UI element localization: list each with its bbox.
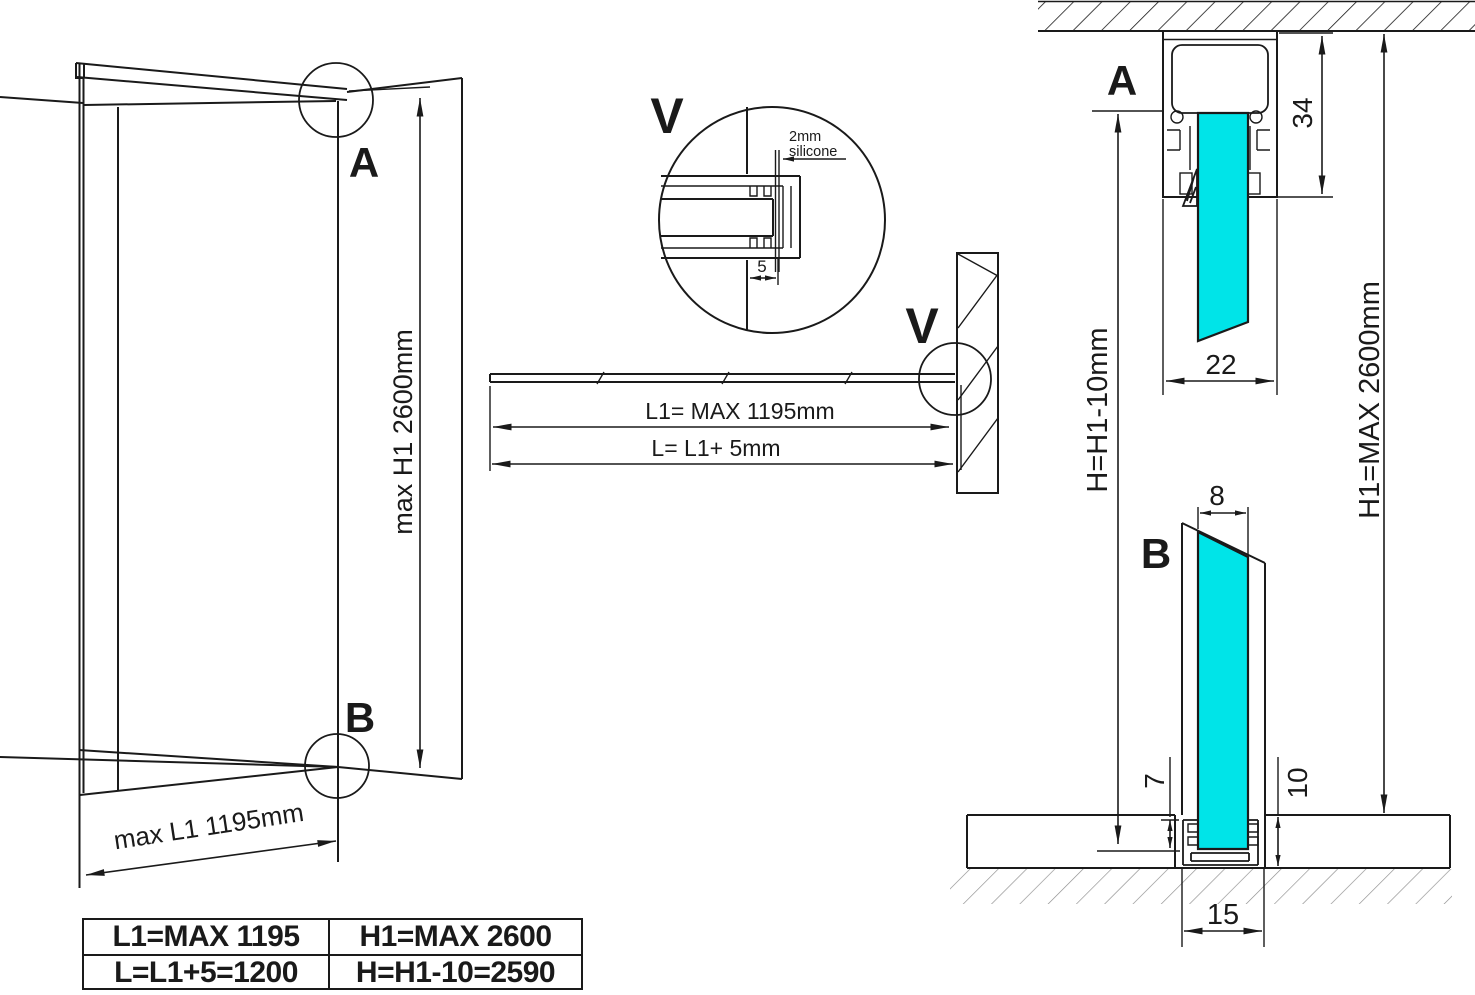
installed-height-dim-text: H=H1-10mm bbox=[1082, 327, 1114, 492]
glass-length-dim-text: L1= MAX 1195mm bbox=[645, 398, 834, 424]
profile-height-dim-text: 34 bbox=[1287, 97, 1318, 128]
silicone-note-line2: silicone bbox=[789, 144, 837, 160]
spec-l1-max: L1=MAX 1195 bbox=[84, 920, 330, 956]
height-dim-text: max H1 2600mm bbox=[388, 329, 418, 535]
max-height-dim-text: H1=MAX 2600mm bbox=[1354, 281, 1386, 519]
section-b-label: B bbox=[1141, 530, 1171, 577]
glass-thickness-dim-text: 8 bbox=[1209, 480, 1225, 511]
detail-v-title: V bbox=[650, 88, 684, 144]
glass-section-a bbox=[1198, 113, 1248, 341]
technical-drawing-page: A B max H1 2600mm max L1 1195mm V 2mm si… bbox=[0, 0, 1475, 995]
spec-h-formula: H=H1-10=2590 bbox=[330, 956, 581, 990]
glass-wedge-gasket bbox=[1183, 169, 1197, 206]
glass-seat-dim-text: 7 bbox=[1139, 773, 1170, 789]
detail-a-label: A bbox=[349, 139, 379, 186]
wall-top-line bbox=[0, 97, 83, 103]
silicone-note-line1: 2mm bbox=[789, 129, 821, 145]
gap-dim-text: 5 bbox=[757, 257, 766, 276]
glass-plan-bar bbox=[490, 374, 955, 382]
glass-section-b bbox=[1198, 532, 1248, 849]
ceiling-hatch bbox=[1038, 1, 1475, 31]
spec-table: L1=MAX 1195 H1=MAX 2600 L=L1+5=1200 H=H1… bbox=[82, 918, 583, 990]
silicone-strip bbox=[776, 150, 780, 272]
detail-v-view: V 2mm silicone 5 bbox=[650, 88, 885, 333]
detail-b-label: B bbox=[345, 694, 375, 741]
profile-width-dim-text: 22 bbox=[1205, 349, 1236, 380]
perspective-view: A B max H1 2600mm max L1 1195mm bbox=[0, 63, 462, 888]
top-profile-bar bbox=[76, 63, 347, 100]
width-dim-text: max L1 1195mm bbox=[112, 797, 306, 855]
plan-detail-v-circle bbox=[919, 343, 991, 415]
floor-wall-line bbox=[0, 757, 338, 767]
spec-l-formula: L=L1+5=1200 bbox=[84, 956, 330, 990]
glass-edge-section bbox=[661, 199, 773, 236]
wall-break-lines bbox=[958, 254, 998, 472]
spec-h1-max: H1=MAX 2600 bbox=[330, 920, 581, 956]
profile-clamp-notches bbox=[750, 186, 771, 248]
technical-drawing: A B max H1 2600mm max L1 1195mm V 2mm si… bbox=[0, 0, 1475, 995]
profile-lip-right bbox=[1248, 173, 1260, 194]
section-b-view: B 8 7 10 15 bbox=[950, 480, 1452, 947]
ground-hatch bbox=[950, 869, 1452, 904]
channel-width-dim-text: 15 bbox=[1207, 899, 1239, 931]
ceiling-profile-chamber bbox=[1172, 45, 1268, 113]
plan-view: V L1= MAX 1195mm L= L1+ 5mm bbox=[490, 253, 998, 493]
profile-depth-dim-text: 10 bbox=[1282, 767, 1313, 798]
profile-rib-left bbox=[1171, 111, 1183, 123]
plan-detail-v-label: V bbox=[905, 298, 939, 354]
section-a-label: A bbox=[1107, 57, 1137, 104]
cut-length-dim-text: L= L1+ 5mm bbox=[651, 435, 780, 461]
glass-far-bottom-edge bbox=[338, 767, 462, 779]
